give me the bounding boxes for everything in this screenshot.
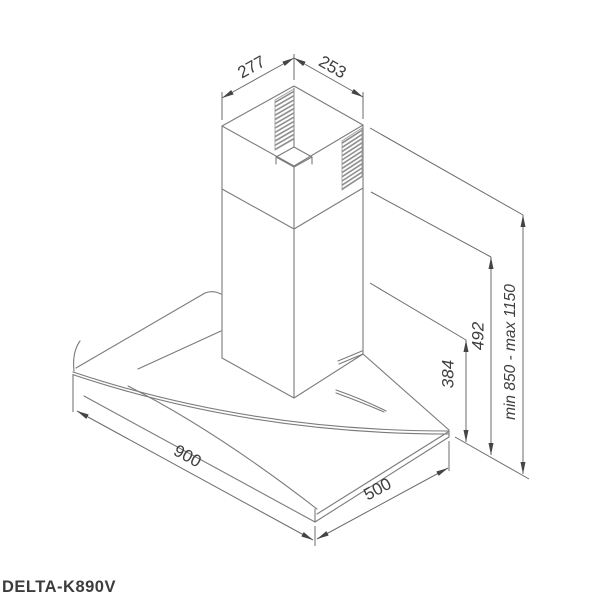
dimension-total-height: min 850 - max 1150: [370, 128, 529, 479]
extension-line: [370, 128, 523, 215]
inner-duct-opening: [276, 147, 312, 167]
body-right-lip: [317, 432, 448, 514]
glass-right-thickness: [336, 390, 386, 412]
right-louver-vent: [342, 128, 362, 190]
dimension-body-depth: 500: [317, 441, 449, 539]
plate-back-left-edge: [138, 331, 221, 369]
left-vent-slats: [275, 91, 294, 149]
chimney-hood-junction: [222, 354, 363, 398]
dimension-label-height-range: min 850 - max 1150: [502, 284, 519, 420]
technical-drawing: 277 253 min 850 - max 1150 492 384: [0, 0, 600, 600]
dimension-line: [77, 411, 313, 540]
extension-line: [455, 437, 529, 479]
left-louver-vent: [275, 89, 294, 150]
chimney-duct: [222, 86, 363, 398]
dimension-top-depth: 253: [294, 52, 363, 119]
dimension-duct-height: 384: [370, 283, 466, 442]
dimension-label-384: 384: [438, 360, 457, 388]
glass-right-edge: [363, 354, 449, 430]
dimension-label-492: 492: [468, 321, 487, 350]
extension-line: [371, 192, 491, 257]
dimension-label-253: 253: [315, 52, 349, 83]
chimney-seam: [222, 188, 363, 229]
dimension-chimney-height: 492: [371, 192, 491, 455]
glass-back-left-edge: [76, 292, 221, 368]
dimension-body-width: 900: [73, 374, 315, 546]
dimension-annotations: 277 253 min 850 - max 1150 492 384: [73, 52, 529, 546]
extension-line: [370, 283, 466, 340]
dimension-label-277: 277: [234, 52, 268, 82]
product-model-label: DELTA-K890V: [2, 578, 116, 596]
glass-canopy-curve-inner: [74, 375, 448, 434]
technical-drawing-page: 277 253 min 850 - max 1150 492 384: [0, 0, 600, 600]
